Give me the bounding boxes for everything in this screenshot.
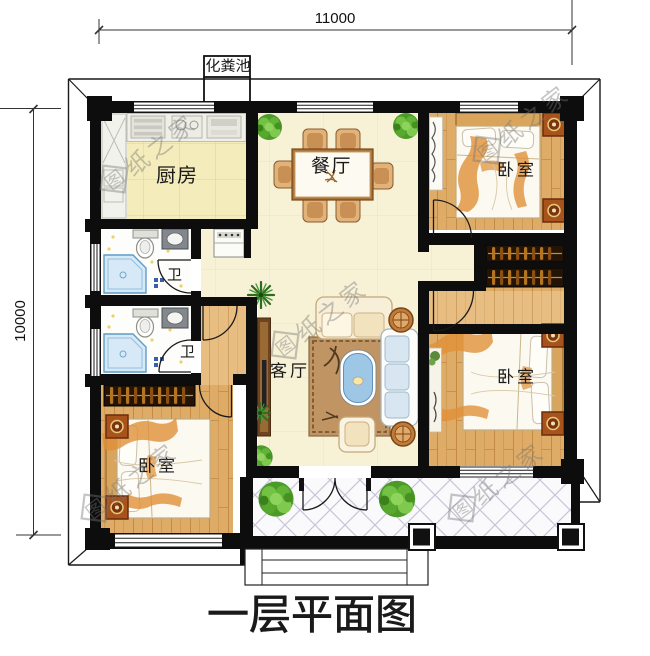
svg-text:10000: 10000 — [12, 300, 29, 342]
svg-text:11000: 11000 — [315, 10, 356, 27]
